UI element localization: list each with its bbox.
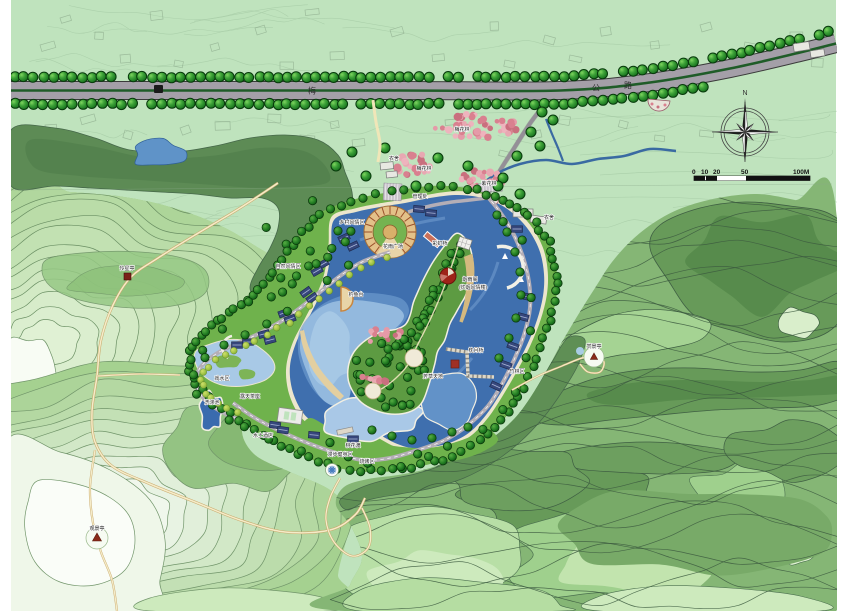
svg-text:20: 20: [713, 169, 721, 176]
svg-text:露天茶座: 露天茶座: [240, 393, 260, 400]
svg-text:洗涤池: 洗涤池: [204, 399, 219, 406]
svg-text:梅花林: 梅花林: [454, 126, 469, 133]
svg-text:赏景亭: 赏景亭: [586, 343, 601, 350]
svg-text:竹林区: 竹林区: [509, 368, 524, 375]
svg-text:烟雨阁: 烟雨阁: [462, 276, 477, 283]
svg-text:梅: 梅: [308, 86, 316, 96]
svg-text:水上酒店: 水上酒店: [253, 432, 273, 439]
svg-text:农舍: 农舍: [544, 214, 554, 221]
svg-text:烧烤区: 烧烤区: [359, 458, 374, 465]
svg-text:50: 50: [741, 169, 749, 176]
svg-text:0: 0: [692, 169, 696, 176]
svg-text:自然风情区: 自然风情区: [275, 263, 300, 270]
svg-text:花雨广场: 花雨广场: [383, 243, 403, 250]
svg-text:钓鱼台: 钓鱼台: [348, 291, 363, 298]
svg-text:乡村风情区: 乡村风情区: [339, 219, 364, 226]
svg-text:桃花渡: 桃花渡: [345, 442, 360, 449]
svg-text:(炊烟风情楼): (炊烟风情楼): [459, 284, 488, 291]
svg-text:彩虹桥: 彩虹桥: [432, 240, 447, 247]
svg-text:怜星亭: 怜星亭: [119, 265, 134, 272]
svg-text:10: 10: [701, 169, 709, 176]
svg-text:100M: 100M: [793, 169, 809, 176]
svg-text:戏水区: 戏水区: [214, 375, 229, 382]
svg-text:芳草天地: 芳草天地: [423, 373, 443, 380]
svg-text:公: 公: [592, 84, 600, 93]
svg-text:漫步健身区: 漫步健身区: [327, 451, 352, 458]
svg-text:紫花林: 紫花林: [481, 180, 496, 187]
svg-text:观景亭: 观景亭: [89, 525, 104, 532]
svg-text:路: 路: [624, 80, 632, 90]
svg-text:枕月桥: 枕月桥: [468, 347, 483, 354]
svg-text:管理处: 管理处: [412, 193, 427, 200]
svg-text:N: N: [742, 90, 747, 97]
svg-text:农舍: 农舍: [389, 155, 399, 162]
svg-text:梅花林: 梅花林: [416, 165, 431, 172]
